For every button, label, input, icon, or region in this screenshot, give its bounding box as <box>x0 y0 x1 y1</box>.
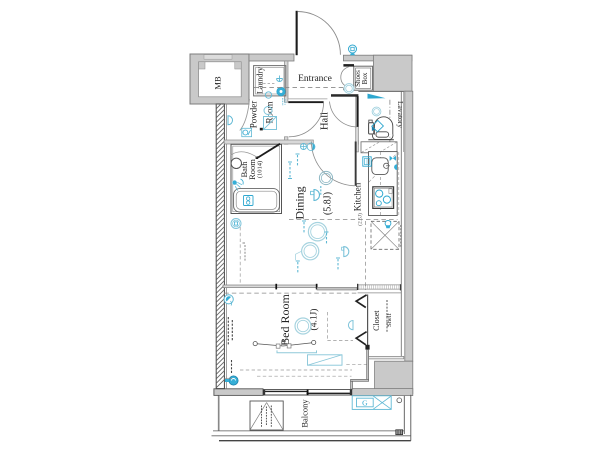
svg-text:Laundry: Laundry <box>256 67 265 94</box>
svg-text:Bed Room: Bed Room <box>278 294 292 346</box>
svg-text:Lavatory: Lavatory <box>396 101 405 128</box>
svg-text:(1014): (1014) <box>257 161 264 178</box>
svg-text:Kitchen: Kitchen <box>353 182 363 211</box>
svg-text:(5.8J): (5.8J) <box>323 192 334 215</box>
svg-text:G: G <box>362 399 368 408</box>
svg-text:(4.1J): (4.1J) <box>309 309 320 331</box>
svg-text:Entrance: Entrance <box>298 74 332 84</box>
svg-text:MB: MB <box>213 76 223 90</box>
svg-text:Room: Room <box>247 159 257 180</box>
svg-text:Closet: Closet <box>372 310 381 331</box>
svg-text:Powder: Powder <box>249 101 259 129</box>
svg-text:Balcony: Balcony <box>300 399 310 428</box>
svg-text:Shelf: Shelf <box>386 312 393 327</box>
svg-text:Box: Box <box>361 72 369 84</box>
svg-text:Dining: Dining <box>293 186 307 219</box>
